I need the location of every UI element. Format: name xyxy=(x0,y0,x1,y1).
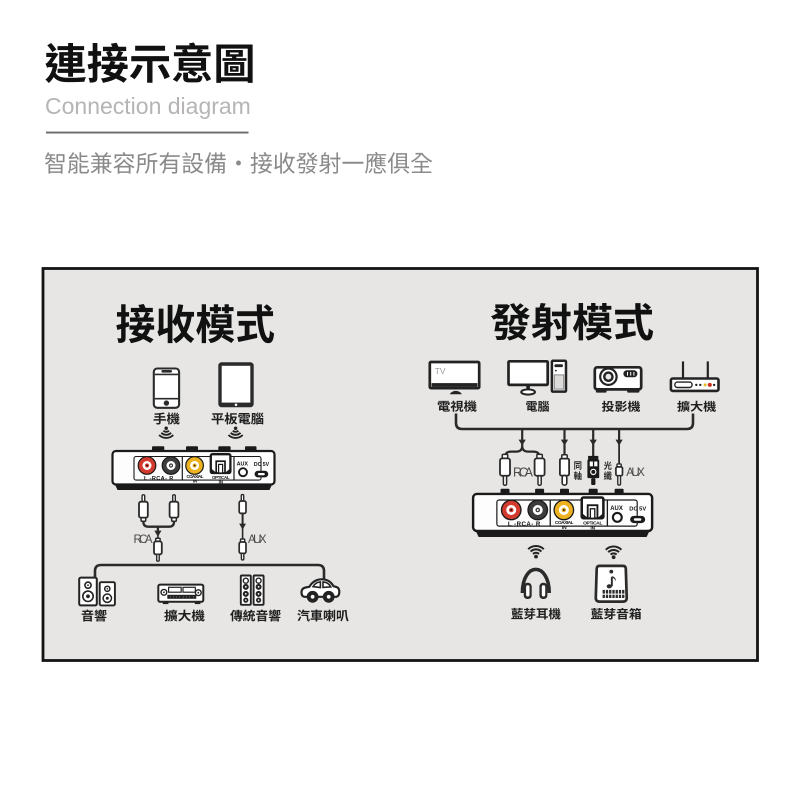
svg-text:Connection diagram: Connection diagram xyxy=(45,93,251,119)
svg-text:AUX: AUX xyxy=(248,534,267,546)
svg-text:AUX: AUX xyxy=(626,467,645,479)
svg-text:RCA: RCA xyxy=(513,466,534,480)
svg-text:TV: TV xyxy=(435,366,446,376)
svg-text:RCA: RCA xyxy=(134,534,153,546)
